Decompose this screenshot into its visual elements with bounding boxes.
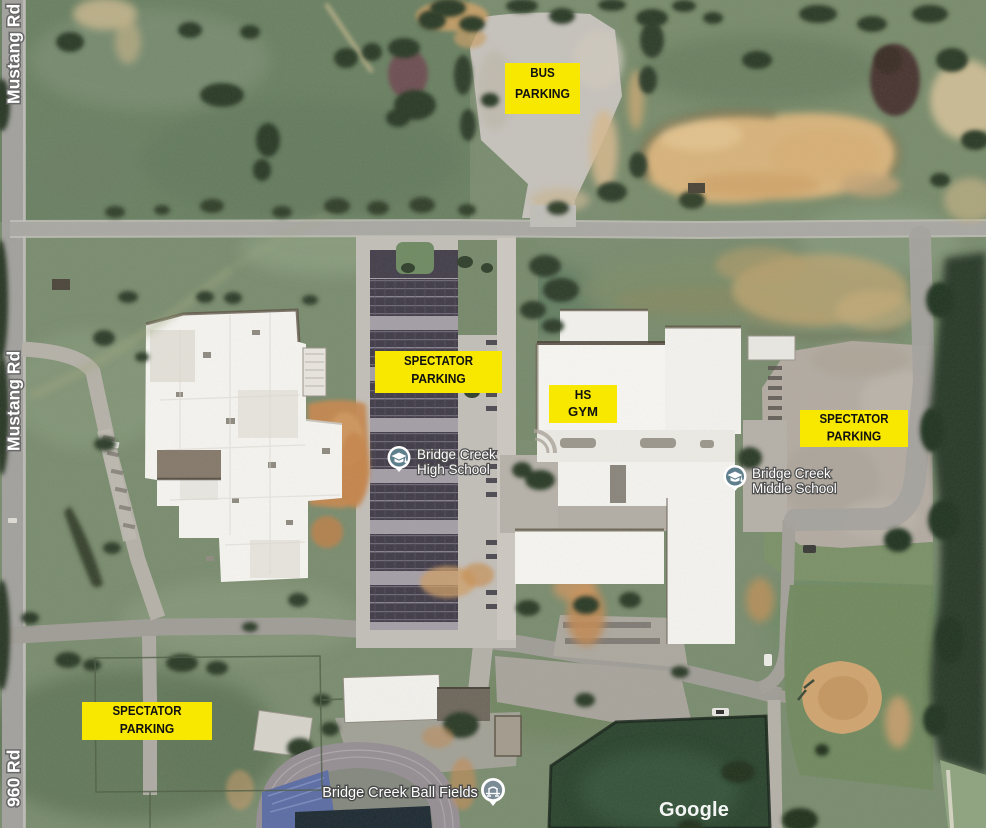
svg-text:GYM: GYM xyxy=(568,404,598,419)
svg-text:PARKING: PARKING xyxy=(515,86,570,101)
svg-text:Mustang Rd: Mustang Rd xyxy=(4,4,24,104)
svg-text:SPECTATOR: SPECTATOR xyxy=(113,703,182,718)
svg-text:Google: Google xyxy=(659,799,729,821)
svg-text:PARKING: PARKING xyxy=(120,721,175,736)
svg-text:SPECTATOR: SPECTATOR xyxy=(820,411,889,426)
svg-text:Bridge Creek: Bridge Creek xyxy=(417,447,496,462)
svg-text:HS: HS xyxy=(575,387,592,402)
svg-text:High School: High School xyxy=(417,462,490,477)
svg-text:BUS: BUS xyxy=(530,65,555,80)
svg-text:960 Rd: 960 Rd xyxy=(4,750,24,807)
svg-text:PARKING: PARKING xyxy=(411,371,466,386)
svg-text:SPECTATOR: SPECTATOR xyxy=(404,353,473,368)
svg-text:PARKING: PARKING xyxy=(827,429,882,444)
svg-text:Mustang Rd: Mustang Rd xyxy=(4,351,24,451)
svg-text:Middle School: Middle School xyxy=(752,481,837,496)
svg-text:Bridge Creek: Bridge Creek xyxy=(752,466,831,481)
svg-text:Bridge Creek Ball Fields: Bridge Creek Ball Fields xyxy=(322,785,478,801)
